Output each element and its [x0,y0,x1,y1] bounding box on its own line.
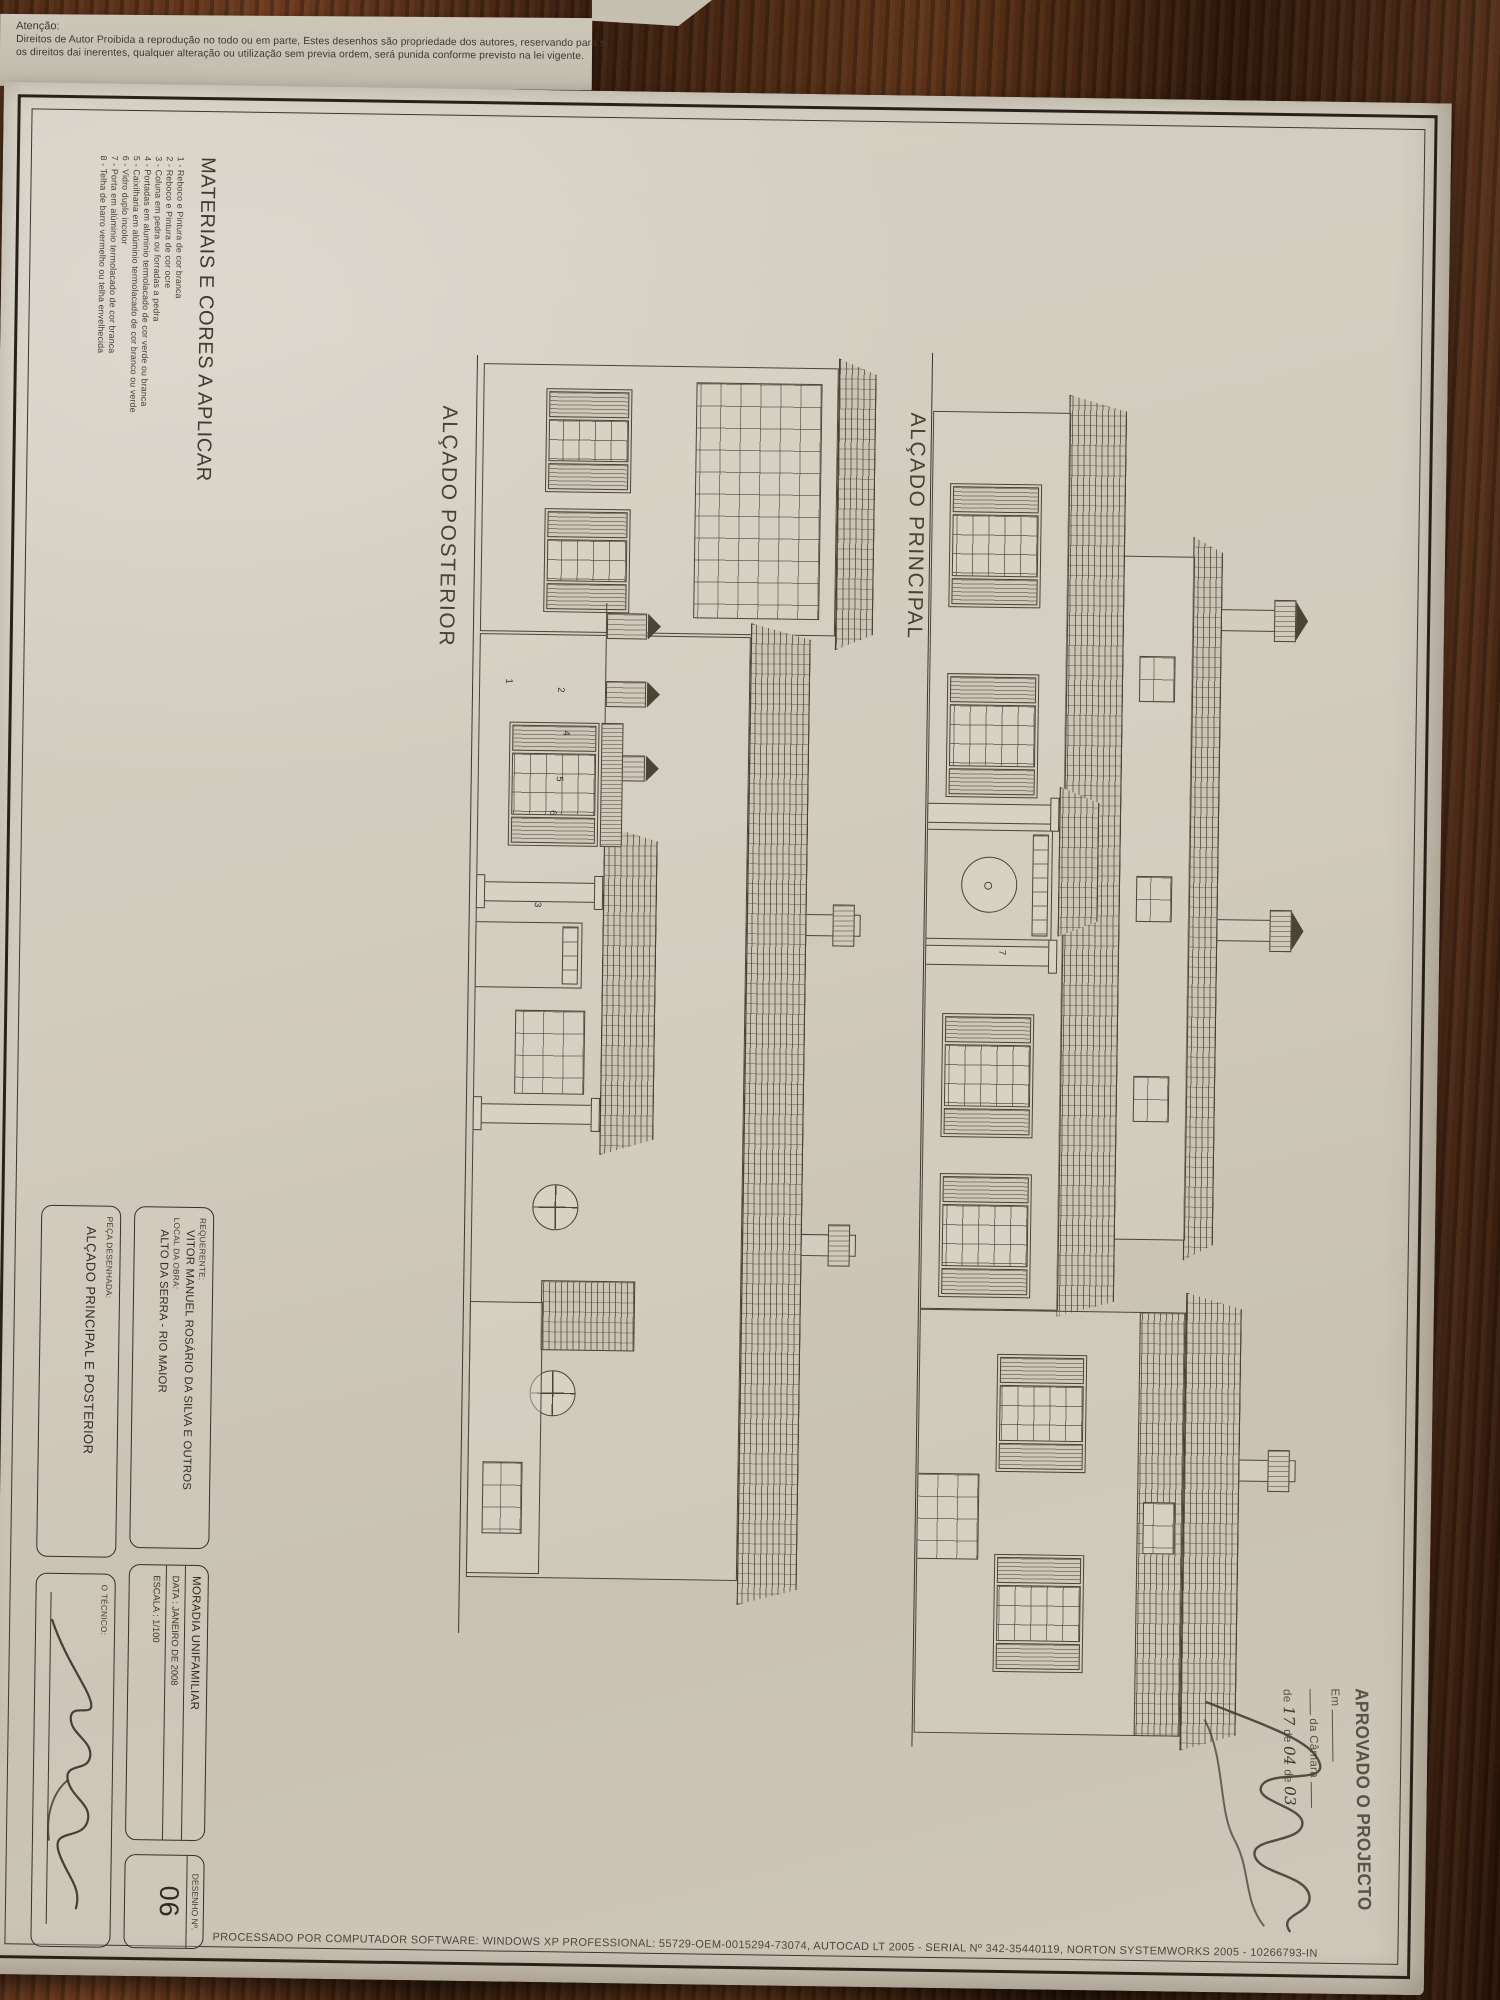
column-base [476,874,486,908]
porch-column [473,1103,594,1125]
titleblock-peca-box: PEÇA DESENHADA: ALÇADO PRINCIPAL E POSTE… [36,1205,121,1558]
porch-window [514,1010,585,1095]
shutter [951,578,1037,605]
moradia-value: MORADIA UNIFAMILIAR [182,1566,208,1840]
annex-window [482,1461,523,1534]
chimney-lantern [1267,1450,1290,1492]
principal-elevation-label: ALÇADO PRINCIPAL [902,412,929,639]
porch-roof-brick-band [1057,787,1099,938]
sheet-content-plane: ALÇADO PRINCIPAL [8,114,1415,1964]
callout-number: 6 [547,810,558,815]
column-capital [590,1098,600,1132]
callout-number: 3 [532,902,543,907]
window-with-shutters [940,1013,1034,1138]
photo-stage: Atenção: Direitos de Autor Proibida a re… [0,0,1500,2000]
window-pane [511,753,596,816]
copyright-notice-strip: Atenção: Direitos de Autor Proibida a re… [0,14,592,90]
porch-column [476,881,597,903]
column-capital [1048,940,1058,974]
principal-elevation-drawing: 7 [912,353,1312,1738]
window-pane [942,1204,1029,1267]
stamp-title: APROVADO O PROJECTO [1350,1688,1375,1941]
annex-gable-brick [540,1280,635,1351]
window-pane [949,704,1036,767]
chimney [1220,609,1282,632]
posterior-elevation-label: ALÇADO POSTERIOR [434,405,462,647]
materials-legend: MATERIAIS E CORES A APLICAR 1 - Reboco e… [88,155,219,817]
chimney-cap [1295,600,1309,642]
shutter [546,583,626,610]
chimney-lantern [1269,910,1292,952]
shutter [953,486,1039,513]
window-pane [548,419,629,462]
shutter [945,1016,1031,1043]
terrace-post-cap [646,756,659,782]
requerente-label: REQUERENTE: [193,1218,207,1538]
materials-title: MATERIAIS E CORES A APLICAR [186,157,219,817]
shutter [941,1268,1027,1295]
shutter [547,511,627,538]
chimney-cap [1290,910,1304,952]
shutter [943,1108,1029,1135]
window-with-shutters [543,508,631,613]
window-pane [547,539,628,582]
titleblock-requerente-box: REQUERENTE: VITOR MANUEL ROSÁRIO DA SILV… [129,1206,214,1549]
window-pane [944,1044,1031,1107]
terrace-post [606,681,646,708]
shutter [548,463,628,490]
titleblock-desenho-box: DESENHO Nº. 06 [123,1854,204,1949]
desenho-divider: 06 [152,1855,187,1947]
shutter [949,768,1035,795]
terrace-post [607,613,647,640]
attic-window [1136,876,1173,923]
callout-number: 5 [554,776,565,781]
wing-attic-window [1142,1502,1175,1554]
escala-value: ESCALA : 1/100 [144,1565,167,1839]
entrance-door [925,829,1053,941]
desenho-numero-label: DESENHO Nº. [186,1856,203,1948]
chimney-lantern [1274,600,1297,642]
window-with-shutters [993,1554,1085,1673]
local-obra-label: LOCAL DA OBRA: [167,1218,181,1538]
window-with-shutters [945,673,1039,798]
titleblock-tecnico-box: O TÉCNICO: [30,1573,116,1948]
door-circle-ornament [961,856,1018,913]
window-pane [952,514,1039,577]
chimney [1215,919,1277,942]
porch-roof-brick-band [599,825,658,1156]
shutter [997,1557,1081,1584]
window-shutter-box [600,723,624,847]
shutter [950,676,1036,703]
attic-window [1139,656,1176,703]
window-with-shutters [938,1173,1032,1298]
porch-door [475,921,583,989]
approval-signature [1195,1688,1348,1940]
shutter [999,1443,1083,1470]
column-capital [594,876,604,910]
terrace-post-cap [648,614,661,640]
window-with-shutters [948,483,1042,608]
shutter [511,817,595,844]
window-pane [999,1385,1084,1442]
terrace-post-cap [647,682,660,708]
column-capital [1050,798,1060,832]
wing-ground-window [916,1473,979,1560]
chimney-lantern [832,904,855,946]
shutter [996,1643,1080,1670]
shutter [942,1176,1028,1203]
titleblock-project-box: MORADIA UNIFAMILIAR DATA : JANEIRO DE 20… [125,1564,209,1841]
window-with-shutters [995,1354,1087,1473]
shutter [512,725,596,752]
paper-corner [592,0,712,26]
peca-desenhada-value: ALÇADO PRINCIPAL E POSTERIOR [79,1226,99,1546]
entrance-column [925,945,1051,967]
desenho-numero-value: 06 [152,1855,184,1947]
wing-glazed-balcony [693,382,822,620]
window-with-shutters [545,388,633,493]
peca-desenhada-label: PEÇA DESENHADA: [100,1217,114,1547]
window-pane [996,1585,1081,1642]
window-with-shutters [508,722,600,847]
callout-number: 2 [555,687,566,692]
callout-number: 4 [560,730,571,735]
callout-number: 7 [996,950,1007,955]
shutter [549,391,629,418]
drawing-sheet: ALÇADO PRINCIPAL [0,82,1452,1995]
door-transom-panes [562,926,579,984]
shutter [1000,1357,1084,1384]
wing-roof-brick-band [1179,1293,1242,1752]
attic-window [1133,1076,1170,1123]
entrance-column [927,803,1053,825]
tecnico-signature [36,1590,107,1931]
column-base [473,1096,483,1130]
wing-roof-brick-band [835,358,877,651]
callout-number: 1 [503,678,514,683]
approval-stamp: APROVADO O PROJECTO Em da Câmara de 17 d… [1193,1688,1377,1962]
posterior-elevation-drawing: 1 2 3 4 5 6 [458,361,877,1627]
door-transom-panes [1031,834,1049,936]
chimney-lantern [828,1224,851,1266]
